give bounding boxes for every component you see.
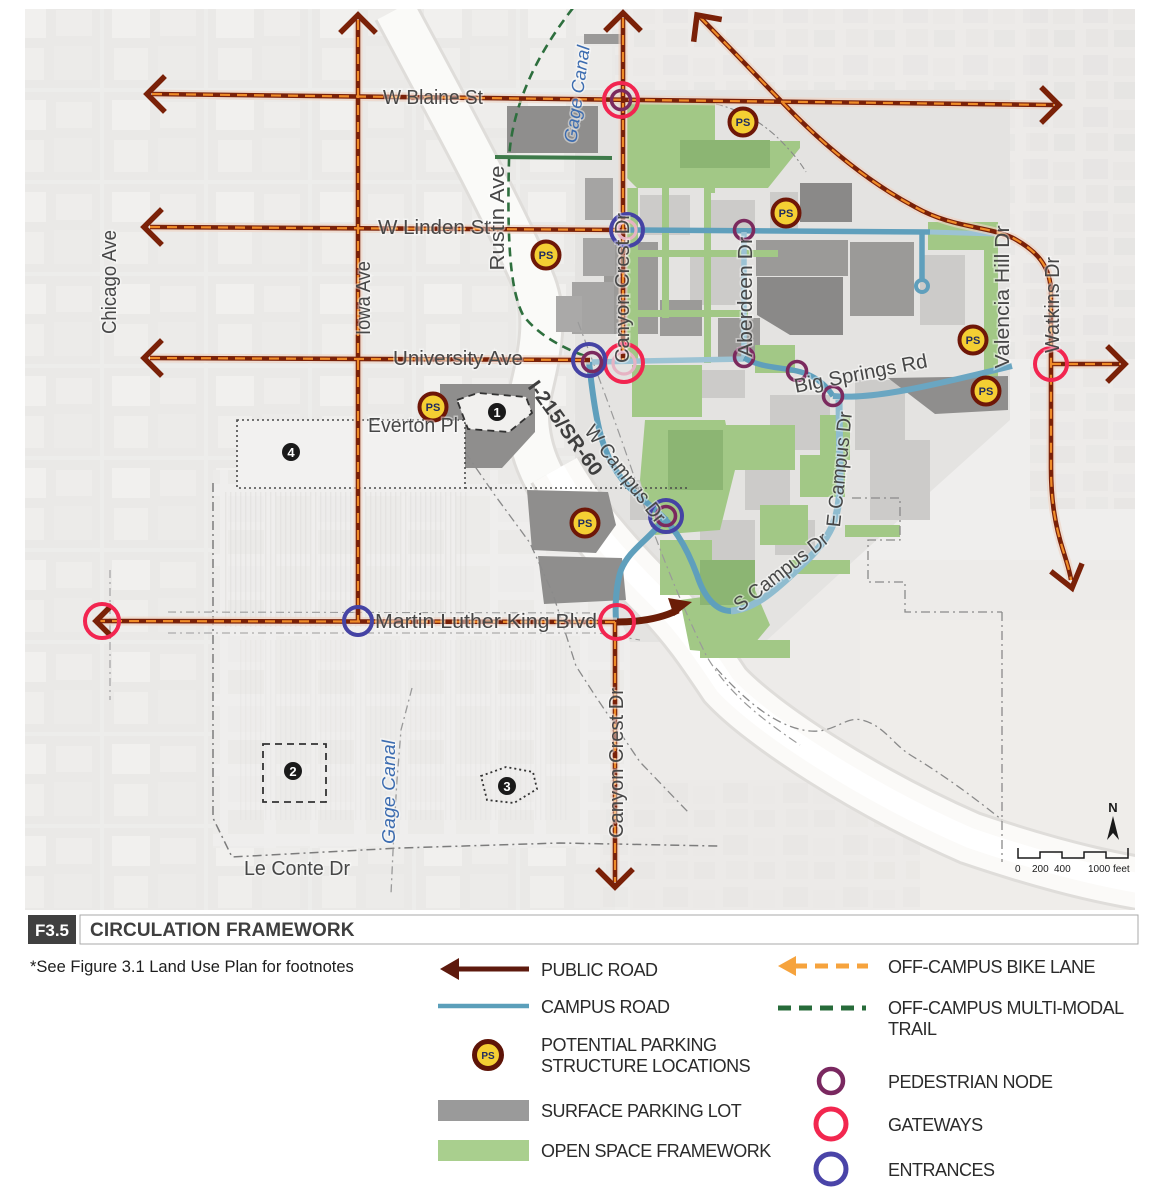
svg-text:1: 1 <box>493 405 500 420</box>
svg-text:200: 200 <box>1032 864 1049 875</box>
svg-text:PS: PS <box>736 117 751 129</box>
svg-text:Rustin Ave: Rustin Ave <box>487 166 509 271</box>
svg-text:Everton Pl: Everton Pl <box>368 415 458 437</box>
svg-text:ENTRANCES: ENTRANCES <box>888 1160 995 1180</box>
svg-text:PS: PS <box>481 1051 495 1062</box>
svg-text:PUBLIC ROAD: PUBLIC ROAD <box>541 960 658 980</box>
svg-text:POTENTIAL PARKING: POTENTIAL PARKING <box>541 1035 717 1055</box>
svg-text:PS: PS <box>578 518 593 530</box>
svg-text:PS: PS <box>979 386 994 398</box>
svg-text:PS: PS <box>539 250 554 262</box>
svg-text:CAMPUS ROAD: CAMPUS ROAD <box>541 997 670 1017</box>
svg-text:Aberdeen Dr: Aberdeen Dr <box>735 237 757 357</box>
svg-text:PS: PS <box>779 208 794 220</box>
svg-text:400: 400 <box>1054 864 1071 875</box>
svg-text:3: 3 <box>503 779 510 794</box>
svg-text:TRAIL: TRAIL <box>888 1019 937 1039</box>
svg-text:1000 feet: 1000 feet <box>1088 864 1130 875</box>
svg-text:Watkins Dr: Watkins Dr <box>1042 257 1064 353</box>
svg-text:OPEN SPACE FRAMEWORK: OPEN SPACE FRAMEWORK <box>541 1141 771 1161</box>
svg-text:F3.5: F3.5 <box>35 921 69 940</box>
svg-text:N: N <box>1108 800 1117 815</box>
svg-text:OFF-CAMPUS BIKE LANE: OFF-CAMPUS BIKE LANE <box>888 957 1096 977</box>
svg-text:0: 0 <box>1015 864 1021 875</box>
svg-text:*See Figure 3.1 Land Use Plan: *See Figure 3.1 Land Use Plan for footno… <box>30 958 354 976</box>
svg-text:PEDESTRIAN NODE: PEDESTRIAN NODE <box>888 1072 1053 1092</box>
svg-text:GATEWAYS: GATEWAYS <box>888 1115 983 1135</box>
svg-text:2: 2 <box>289 764 296 779</box>
svg-text:Valencia Hill Dr: Valencia Hill Dr <box>992 225 1014 368</box>
svg-text:Gage Canal: Gage Canal <box>379 739 399 844</box>
svg-text:STRUCTURE LOCATIONS: STRUCTURE LOCATIONS <box>541 1056 751 1076</box>
svg-text:W Blaine St: W Blaine St <box>383 87 483 109</box>
svg-text:OFF-CAMPUS MULTI-MODAL: OFF-CAMPUS MULTI-MODAL <box>888 998 1124 1018</box>
svg-text:Canyon Crest Dr: Canyon Crest Dr <box>606 688 628 838</box>
svg-text:CIRCULATION FRAMEWORK: CIRCULATION FRAMEWORK <box>90 920 355 941</box>
svg-text:Canyon Crest Dr: Canyon Crest Dr <box>612 213 634 363</box>
svg-text:University Ave: University Ave <box>393 348 523 370</box>
svg-text:Chicago Ave: Chicago Ave <box>99 230 121 334</box>
svg-text:W Linden St: W Linden St <box>378 217 490 239</box>
svg-text:PS: PS <box>966 335 981 347</box>
svg-text:4: 4 <box>287 445 295 460</box>
svg-text:Martin Luther King Blvd: Martin Luther King Blvd <box>375 611 597 633</box>
svg-text:Iowa Ave: Iowa Ave <box>353 261 375 335</box>
svg-text:Le Conte Dr: Le Conte Dr <box>244 858 350 880</box>
svg-text:PS: PS <box>426 402 441 414</box>
svg-text:SURFACE PARKING LOT: SURFACE PARKING LOT <box>541 1101 742 1121</box>
